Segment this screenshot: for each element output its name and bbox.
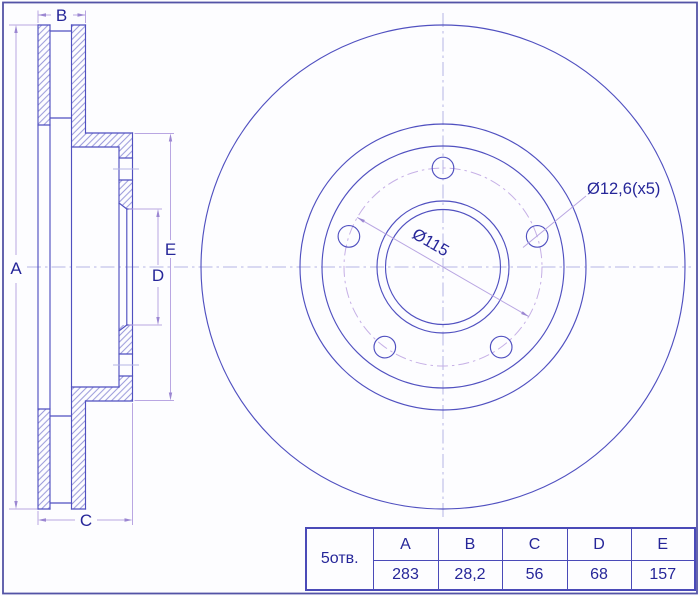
bolt-circle-dim-label: Ø115 bbox=[409, 225, 452, 260]
table-value-e: 157 bbox=[631, 561, 695, 591]
brake-disc-drawing: A B C bbox=[0, 0, 700, 596]
dim-c-arrow-right bbox=[125, 518, 133, 521]
dim-a-arrow-top bbox=[14, 25, 17, 33]
table-row-header: 5отв. bbox=[306, 528, 373, 590]
bolt-hole-upper-left bbox=[338, 226, 360, 248]
hatch-inboard-plate-flange-top bbox=[72, 25, 133, 147]
table-col-header-e: E bbox=[631, 528, 695, 561]
dim-d-label: D bbox=[152, 266, 164, 285]
table-col-header-b: B bbox=[438, 528, 502, 561]
hatch-outboard-plate-top bbox=[38, 25, 50, 125]
dimension-b: B bbox=[38, 6, 86, 25]
dim-e-arrow-bottom bbox=[169, 393, 172, 401]
bolt-hole-callout-label: Ø12,6(x5) bbox=[587, 180, 660, 198]
table-col-header-c: C bbox=[502, 528, 567, 561]
sheet-border bbox=[3, 3, 697, 594]
dim-e-arrow-top bbox=[169, 134, 172, 142]
dim-c-arrow-left bbox=[38, 518, 46, 521]
hatch-outboard-plate-bottom bbox=[38, 409, 50, 509]
dim-b-arrow-left bbox=[38, 13, 46, 16]
section-view: A B C bbox=[9, 6, 176, 530]
table-value-a: 283 bbox=[373, 561, 438, 591]
bolt-circle-dim-arrow-1 bbox=[357, 217, 365, 222]
dim-c-label: C bbox=[80, 511, 92, 530]
table-value-c: 56 bbox=[502, 561, 567, 591]
spec-table: 5отв. A B C D E 283 28,2 56 68 157 bbox=[305, 527, 696, 591]
hatch-inboard-plate-flange-bottom bbox=[72, 387, 133, 509]
table-value-b: 28,2 bbox=[438, 561, 502, 591]
dim-d-arrow-top bbox=[156, 209, 159, 217]
bolt-hole-callout: Ø12,6(x5) bbox=[523, 180, 660, 248]
bolt-hole-leader-line bbox=[523, 196, 586, 248]
dim-b-label: B bbox=[56, 6, 67, 25]
dim-a-arrow-bottom bbox=[14, 501, 17, 509]
table-value-d: 68 bbox=[567, 561, 631, 591]
hatch-hat-wall-bottom-a bbox=[119, 376, 133, 387]
table-col-header-d: D bbox=[567, 528, 631, 561]
dim-d-arrow-bottom bbox=[156, 317, 159, 325]
hatch-hat-wall-top-a bbox=[119, 147, 133, 158]
table-col-header-a: A bbox=[373, 528, 438, 561]
drawing-sheet: A B C bbox=[0, 0, 700, 596]
dim-b-arrow-right bbox=[78, 13, 86, 16]
dim-e-label: E bbox=[165, 240, 176, 259]
dim-a-label: A bbox=[10, 259, 22, 278]
bolt-circle-dim-arrow-2 bbox=[521, 311, 529, 316]
